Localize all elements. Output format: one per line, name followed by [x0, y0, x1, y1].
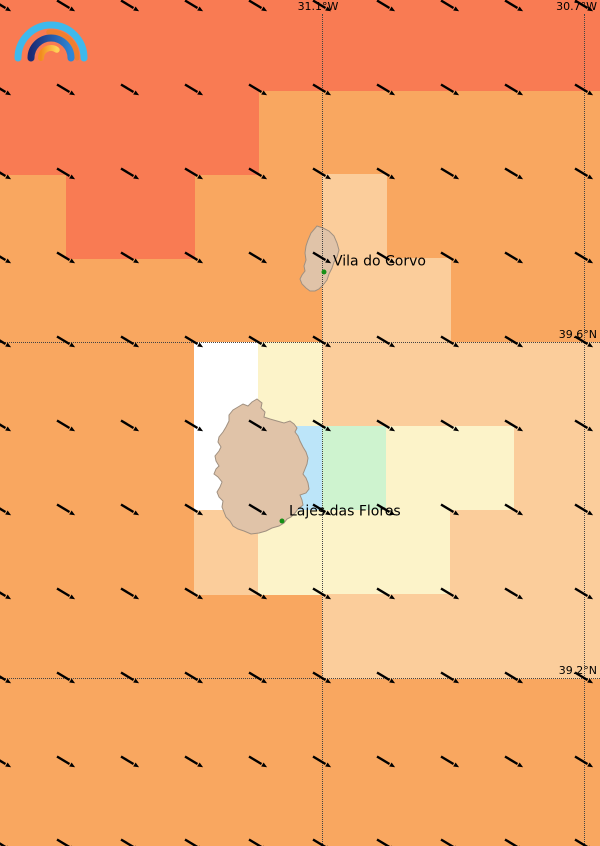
logo-yellow-arc: [41, 48, 57, 58]
place-label: Lajes das Flores: [289, 505, 401, 520]
longitude-label-31-1w: 31.1°W: [298, 1, 339, 13]
place-label: Vila do Corvo: [333, 255, 426, 270]
town-dot: [322, 270, 327, 275]
latitude-label-39-6n: 39.6°N: [559, 329, 597, 341]
town-dot: [280, 519, 285, 524]
rainbow-logo-icon: [6, 12, 94, 64]
latitude-label-39-2n: 39.2°N: [559, 665, 597, 677]
weather-map[interactable]: Vila do CorvoLajes das Flores 31.1°W 30.…: [0, 0, 600, 846]
places-layer: Vila do CorvoLajes das Flores: [0, 0, 600, 846]
longitude-label-30-7w: 30.7°W: [556, 1, 597, 13]
